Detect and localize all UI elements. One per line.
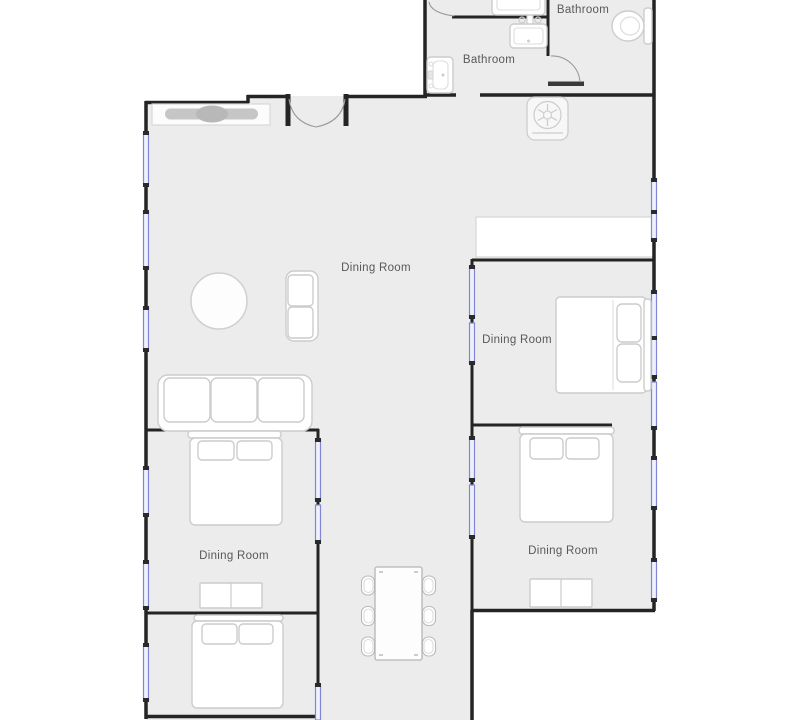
dining-chair	[362, 576, 375, 595]
loveseat-sofa	[286, 271, 318, 341]
countertop-sink	[492, 0, 545, 15]
window	[143, 210, 149, 270]
three-seat-sofa	[158, 375, 312, 431]
dining-chair	[423, 607, 436, 626]
dresser-right	[530, 579, 592, 607]
double-bed-left-lower	[192, 615, 283, 708]
room-label-dining-main: Dining Room	[341, 262, 411, 274]
window	[143, 560, 149, 610]
washing-machine	[527, 97, 568, 140]
window	[315, 505, 321, 544]
dining-chair	[362, 607, 375, 626]
floor-plan-canvas: Bathroom Bathroom Dining Room Dining Roo…	[0, 0, 797, 720]
dining-chair	[362, 637, 375, 656]
vanity-sink	[427, 57, 453, 93]
window	[651, 558, 657, 602]
round-table	[191, 273, 247, 329]
room-label-bedroom-right: Dining Room	[482, 334, 552, 346]
window	[469, 323, 475, 365]
window	[143, 643, 149, 702]
window	[651, 290, 657, 379]
dining-chair	[423, 576, 436, 595]
window	[469, 436, 475, 482]
kitchen-sideboard	[152, 104, 270, 125]
window	[315, 683, 321, 720]
window	[469, 485, 475, 539]
room-label-bathroom-left: Bathroom	[463, 54, 515, 66]
dining-chair	[423, 637, 436, 656]
window	[315, 438, 321, 502]
room-label-bedroom-bottom-left: Dining Room	[199, 550, 269, 562]
window	[469, 265, 475, 319]
double-bed-right	[556, 297, 651, 393]
double-bed-bottom-right	[519, 427, 614, 522]
window	[651, 382, 657, 430]
room-label-bedroom-bottom-right: Dining Room	[528, 545, 598, 557]
room-label-bathroom-right: Bathroom	[557, 4, 609, 16]
window	[143, 131, 149, 187]
closet	[476, 217, 653, 257]
double-bed-left-upper	[188, 431, 282, 525]
dining-table	[362, 567, 436, 660]
window	[143, 466, 149, 517]
window	[651, 178, 657, 242]
floor-plan-page: Bathroom Bathroom Dining Room Dining Roo…	[0, 0, 797, 720]
dresser-left	[200, 583, 262, 608]
window	[143, 306, 149, 352]
window	[651, 456, 657, 510]
